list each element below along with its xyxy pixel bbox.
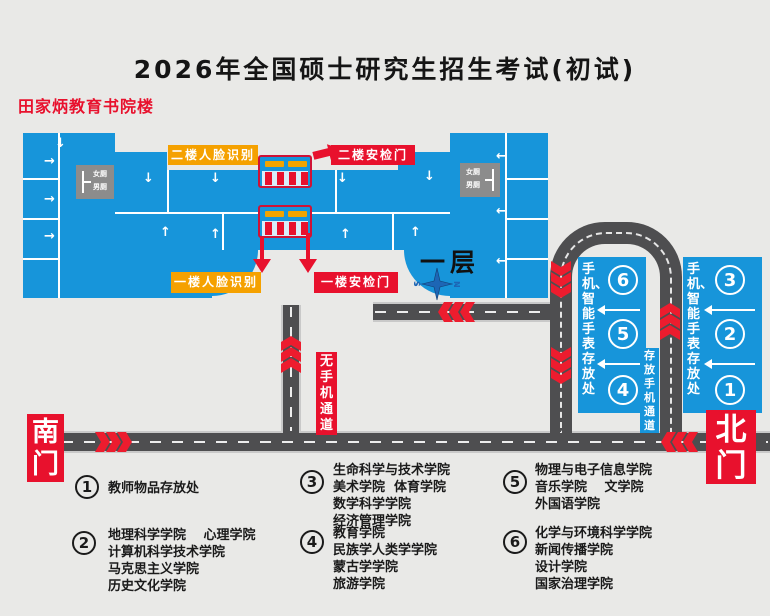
storage-number-1: 1: [715, 375, 745, 405]
flow-arrow-up-icon: ↑: [340, 228, 351, 241]
arrow-to-face-l1: [260, 237, 264, 260]
compass-letter-s: S: [412, 281, 421, 287]
compass-letter-n: N: [452, 281, 461, 288]
flow-arrow-left-icon: ←: [496, 205, 507, 218]
storage-number-6: 6: [608, 265, 638, 295]
flow-arrow-up-icon: ↑: [160, 226, 171, 239]
legend-item-2: 地理科学学院 心理学院 计算机科学技术学院 马克思主义学院 历史文化学院: [108, 527, 256, 595]
building-top-tab-left: [113, 152, 167, 172]
room-divider: [507, 178, 548, 180]
no-phone-channel-label: 无手机通道: [316, 352, 337, 435]
flow-arrow-right-icon: →: [44, 155, 55, 168]
storage-arrow-icon: [600, 309, 640, 311]
flow-chevrons-up-loop: [660, 303, 680, 336]
flow-arrow-left-icon: ←: [496, 150, 507, 163]
south-gate: 南门: [27, 414, 64, 482]
flow-arrow-up-icon: ↑: [210, 228, 221, 241]
store-phone-channel-label: 存放手机通道: [640, 348, 659, 433]
flow-chevrons-up-no-phone: [281, 336, 301, 369]
label-security-door-l1: 一楼安检门: [314, 272, 398, 293]
building-name: 田家炳教育书院楼: [18, 93, 154, 117]
storage-number-4: 4: [608, 375, 638, 405]
flow-chevrons-down-loop-a: [551, 261, 571, 294]
restroom-female-label: 女厕: [466, 168, 480, 177]
legend-number-6: 6: [503, 530, 527, 554]
page-title: 2026年全国硕士研究生招生考试(初试): [0, 50, 770, 86]
flow-arrow-right-icon: →: [44, 230, 55, 243]
flow-chevrons-west-upper-road: [438, 302, 471, 322]
gate-orange-bar: [265, 161, 284, 167]
gate-red-bar: [277, 222, 284, 235]
restroom-right: 女厕 男厕: [460, 163, 500, 197]
gate-red-bar: [265, 172, 272, 185]
room-divider: [507, 218, 548, 220]
legend-number-1: 1: [75, 475, 99, 499]
legend-item-4: 教育学院 民族学人类学学院 蒙古学学院 旅游学院: [333, 525, 437, 593]
legend-number-5: 5: [503, 470, 527, 494]
gate-red-bar: [265, 222, 272, 235]
arrow-to-security-l1: [306, 233, 310, 260]
room-divider: [167, 170, 169, 212]
legend-number-4: 4: [300, 530, 324, 554]
storage-box-label: 手机、智能手表存放处: [582, 262, 597, 397]
restroom-icon: [485, 179, 492, 181]
restroom-left: 女厕 男厕: [76, 165, 114, 199]
compass-icon: S N: [412, 266, 462, 302]
label-face-recognition-l1: 一楼人脸识别: [171, 272, 261, 293]
gate-red-bar: [301, 172, 308, 185]
gate-red-bar: [289, 222, 296, 235]
storage-box-123: 手机、智能手表存放处 3 2 1: [683, 257, 762, 413]
gate-orange-bar: [288, 161, 307, 167]
gate-red-bar: [289, 172, 296, 185]
flow-arrow-down-icon: ↓: [55, 137, 66, 150]
gate-orange-bar: [265, 211, 284, 217]
flow-chevrons-west-north-gate: [661, 432, 694, 452]
room-divider: [507, 258, 548, 260]
flow-arrow-down-icon: ↓: [143, 172, 154, 185]
storage-number-5: 5: [608, 319, 638, 349]
legend-item-1: 教师物品存放处: [108, 480, 199, 497]
room-divider: [23, 218, 58, 220]
restroom-female-label: 女厕: [93, 170, 107, 179]
room-divider: [222, 212, 224, 250]
legend-item-3: 生命科学与技术学院 美术学院 体育学院 数学科学学院 经济管理学院: [333, 462, 450, 530]
storage-box-456: 手机、智能手表存放处 6 5 4: [578, 257, 646, 413]
storage-number-2: 2: [715, 319, 745, 349]
flow-arrow-right-icon: →: [44, 193, 55, 206]
legend-number-3: 3: [300, 470, 324, 494]
restroom-icon: [492, 169, 494, 191]
flow-chevrons-down-loop-b: [551, 347, 571, 380]
room-divider: [23, 178, 58, 180]
storage-arrow-icon: [707, 309, 755, 311]
restroom-icon: [84, 181, 91, 183]
room-divider: [392, 212, 394, 250]
label-security-door-l2: 二楼安检门: [331, 145, 415, 165]
legend-item-6: 化学与环境科学学院 新闻传播学院 设计学院 国家治理学院: [535, 525, 652, 593]
flow-chevrons-east: [95, 432, 128, 452]
arrow-to-face-l1-head: [253, 259, 271, 273]
north-gate: 北门: [706, 410, 756, 484]
arrow-to-security-l1-head: [299, 259, 317, 273]
room-divider: [58, 133, 60, 298]
storage-number-3: 3: [715, 265, 745, 295]
room-divider: [23, 258, 58, 260]
gate-orange-bar: [288, 211, 307, 217]
legend-number-2: 2: [72, 531, 96, 555]
flow-arrow-down-icon: ↓: [210, 172, 221, 185]
storage-arrow-icon: [707, 363, 755, 365]
gate-red-bar: [277, 172, 284, 185]
restroom-male-label: 男厕: [466, 181, 480, 190]
security-gate-structure-l2: [258, 155, 312, 188]
restroom-male-label: 男厕: [93, 183, 107, 192]
security-gate-structure-l1: [258, 205, 312, 238]
flow-arrow-down-icon: ↓: [424, 170, 435, 183]
exam-site-map: 2026年全国硕士研究生招生考试(初试) 田家炳教育书院楼 ↓ → → → ↓ …: [0, 0, 770, 616]
storage-arrow-icon: [600, 363, 640, 365]
flow-arrow-up-icon: ↑: [410, 226, 421, 239]
legend-item-5: 物理与电子信息学院 音乐学院 文学院 外国语学院: [535, 462, 652, 513]
label-face-recognition-l2: 二楼人脸识别: [168, 145, 258, 165]
flow-arrow-left-icon: ←: [496, 255, 507, 268]
building-left-wing: [23, 133, 115, 298]
storage-box-label: 手机、智能手表存放处: [687, 262, 702, 397]
flow-arrow-down-icon: ↓: [337, 172, 348, 185]
